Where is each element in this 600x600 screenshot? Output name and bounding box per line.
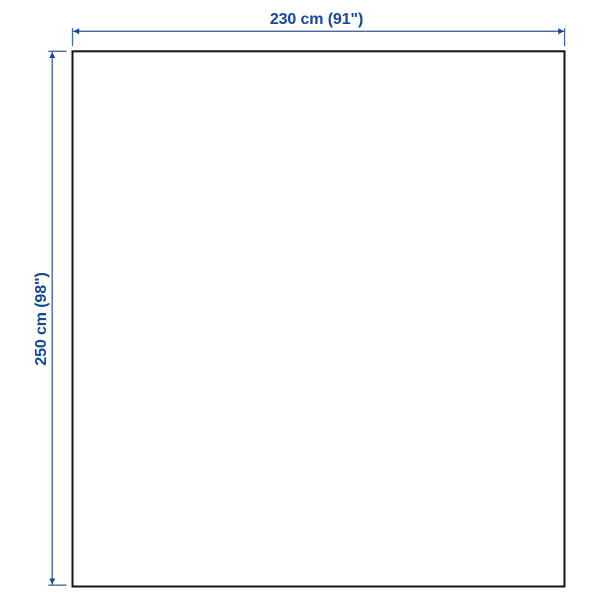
svg-text:230 cm (91"): 230 cm (91") xyxy=(270,11,363,28)
svg-text:250 cm (98"): 250 cm (98") xyxy=(33,272,50,365)
